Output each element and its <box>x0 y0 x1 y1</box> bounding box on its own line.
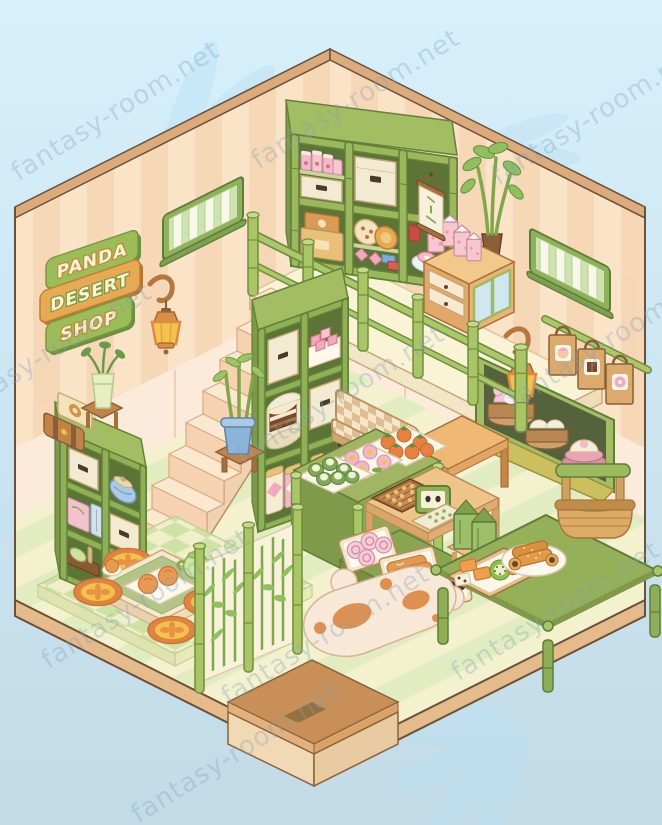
drawer-box <box>355 156 396 206</box>
panda-shop-scene: PANDA DESERT SHOP <box>0 0 662 825</box>
glass-door <box>474 279 492 325</box>
glass-door <box>493 270 510 315</box>
lantern-glass <box>152 322 180 344</box>
cookie-basket <box>555 464 635 538</box>
illustration-stage: PANDA DESERT SHOP <box>0 0 662 825</box>
tart-cushion <box>148 617 196 644</box>
register-screen <box>421 491 445 508</box>
